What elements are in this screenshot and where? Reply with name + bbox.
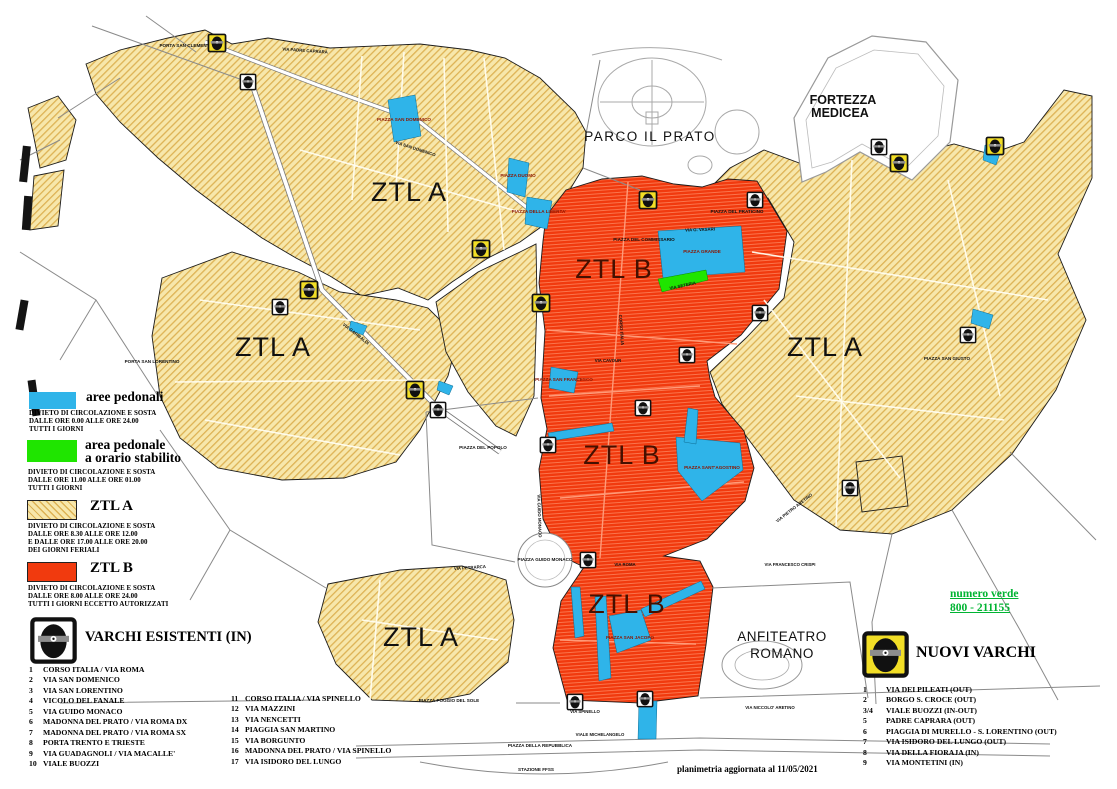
anfiteatro-label-line1: ANFITEATRO bbox=[737, 629, 827, 644]
list-item: 3VIA SAN LORENTINO bbox=[29, 686, 187, 696]
item-name: VIA SAN LORENTINO bbox=[43, 686, 123, 696]
new-varco-icon bbox=[300, 281, 317, 298]
varco-icon bbox=[871, 139, 886, 154]
ztl-a-label-1: ZTL A bbox=[371, 177, 447, 207]
piazza-commissario-label: PIAZZA DEL COMMISSARIO bbox=[613, 237, 675, 242]
ztl-map-page: ZTL A ZTL A ZTL A ZTL A ZTL B ZTL B ZTL … bbox=[0, 0, 1117, 789]
legend-line: DALLE ORE 8.00 ALLE ORE 24.00 bbox=[28, 593, 168, 601]
piazza-liberta-label: PIAZZA DELLA LIBERTA' bbox=[512, 209, 567, 214]
varchi-esistenti-list-col1: 1CORSO ITALIA / VIA ROMA 2VIA SAN DOMENI… bbox=[29, 665, 187, 770]
anfiteatro-label-line2: ROMANO bbox=[750, 646, 814, 661]
item-name: VIA NENCETTI bbox=[245, 715, 301, 725]
street-label-cavour: VIA CAVOUR bbox=[595, 358, 622, 363]
list-item: 3/4VIALE BUOZZI (IN-OUT) bbox=[863, 706, 1057, 716]
item-name: MADONNA DEL PRATO / VIA ROMA SX bbox=[43, 728, 186, 738]
item-name: VIA ISIDORO DEL LUNGO bbox=[245, 757, 341, 767]
item-name: VIA DEI PILEATI (OUT) bbox=[886, 685, 972, 695]
item-name: VIA ISIDORO DEL LUNGO (OUT) bbox=[886, 737, 1006, 747]
legend-line: DIVIETO DI CIRCOLAZIONE E SOSTA bbox=[29, 410, 156, 418]
legend-swatch-ztl-b bbox=[27, 562, 77, 582]
new-varco-icon bbox=[406, 381, 423, 398]
item-name: VIA GUIDO MONACO bbox=[43, 707, 122, 717]
street-label-guido-monaco: VIA GUIDO MONACO bbox=[536, 494, 543, 538]
item-number: 4 bbox=[29, 696, 43, 706]
item-number: 3 bbox=[29, 686, 43, 696]
list-item: 1CORSO ITALIA / VIA ROMA bbox=[29, 665, 187, 675]
ztl-b-label-2: ZTL B bbox=[583, 440, 661, 470]
varco-icon bbox=[637, 691, 652, 706]
item-number: 6 bbox=[863, 727, 886, 737]
legend-line: DEI GIORNI FERIALI bbox=[28, 547, 155, 555]
nuovi-varchi-list: 1VIA DEI PILEATI (OUT) 2BORGO S. CROCE (… bbox=[863, 685, 1057, 769]
legend-line: DIVIETO DI CIRCOLAZIONE E SOSTA bbox=[28, 585, 168, 593]
legend-desc-ztl-b: DIVIETO DI CIRCOLAZIONE E SOSTA DALLE OR… bbox=[28, 585, 168, 609]
legend-desc-ztl-a: DIVIETO DI CIRCOLAZIONE E SOSTA DALLE OR… bbox=[28, 523, 155, 555]
numero-verde-number: 800 - 211155 bbox=[950, 602, 1018, 616]
item-name: PIAGGIA SAN MARTINO bbox=[245, 725, 335, 735]
ztl-a-label-4: ZTL A bbox=[383, 622, 459, 652]
street-label-niccolo-aretino: VIA NICCOLO' ARETINO bbox=[745, 705, 795, 710]
fortezza-label-line1: FORTEZZA bbox=[810, 93, 877, 107]
piazza-praticino-label: PIAZZA DEL PRATICINO bbox=[711, 209, 764, 214]
item-number: 5 bbox=[863, 716, 886, 726]
item-number: 17 bbox=[231, 757, 245, 767]
list-item: 7MADONNA DEL PRATO / VIA ROMA SX bbox=[29, 728, 187, 738]
piazza-san-giusto-label: PIAZZA SAN GIUSTO bbox=[924, 356, 971, 361]
porta-san-clemente-label: PORTA SAN CLEMENTE bbox=[159, 43, 212, 48]
item-number: 11 bbox=[231, 694, 245, 704]
item-name: VIA DELLA FIORAJA (IN) bbox=[886, 748, 979, 758]
varchi-esistenti-list-col2: 11CORSO ITALIA / VIA SPINELLO 12VIA MAZZ… bbox=[231, 694, 391, 767]
list-item: 12VIA MAZZINI bbox=[231, 704, 391, 714]
item-name: PADRE CAPRARA (OUT) bbox=[886, 716, 975, 726]
varco-icon bbox=[752, 305, 767, 320]
legend-desc-aree-pedonali: DIVIETO DI CIRCOLAZIONE E SOSTA DALLE OR… bbox=[29, 410, 156, 434]
new-varco-icon bbox=[890, 154, 907, 171]
legend-title-ztl-b: ZTL B bbox=[90, 561, 133, 576]
item-number: 10 bbox=[29, 759, 43, 769]
ztl-a-zone-rightsmall bbox=[856, 456, 908, 512]
piazza-duomo-label: PIAZZA DUOMO bbox=[500, 173, 536, 178]
legend-line: DALLE ORE 11.00 ALLE ORE 01.00 bbox=[28, 477, 155, 485]
list-item: 5PADRE CAPRARA (OUT) bbox=[863, 716, 1057, 726]
numero-verde-label: numero verde bbox=[950, 588, 1018, 602]
list-item: 5VIA GUIDO MONACO bbox=[29, 707, 187, 717]
item-name: VIALE BUOZZI (IN-OUT) bbox=[886, 706, 977, 716]
varco-icon bbox=[580, 552, 595, 567]
varco-icon bbox=[540, 437, 555, 452]
item-name: VIA BORGUNTO bbox=[245, 736, 305, 746]
ztl-b-label-3: ZTL B bbox=[588, 589, 666, 619]
item-number: 8 bbox=[29, 738, 43, 748]
varchi-esistenti-title: VARCHI ESISTENTI (IN) bbox=[85, 630, 252, 645]
fortezza-label-line2: MEDICEA bbox=[811, 106, 869, 120]
item-number: 14 bbox=[231, 725, 245, 735]
legend-title-aree-pedonali: aree pedonali bbox=[86, 390, 163, 403]
item-number: 15 bbox=[231, 736, 245, 746]
legend-title-orario-stabilito: a orario stabilito bbox=[85, 451, 181, 464]
piazza-poggio-del-sole-label: PIAZZA POGGIO DEL SOLE bbox=[419, 698, 480, 703]
piazza-sant-agostino-label: PIAZZA SANT'AGOSTINO bbox=[684, 465, 740, 470]
list-item: 7VIA ISIDORO DEL LUNGO (OUT) bbox=[863, 737, 1057, 747]
item-number: 9 bbox=[29, 749, 43, 759]
new-varco-icon bbox=[472, 240, 489, 257]
item-name: VIA SAN DOMENICO bbox=[43, 675, 120, 685]
varco-icon bbox=[240, 74, 255, 89]
list-item: 8VIA DELLA FIORAJA (IN) bbox=[863, 748, 1057, 758]
list-item: 13VIA NENCETTI bbox=[231, 715, 391, 725]
item-number: 9 bbox=[863, 758, 886, 768]
stazione-ffss-label: STAZIONE FFSS bbox=[518, 767, 554, 772]
legend-line: E DALLE ORE 17.00 ALLE ORE 20.00 bbox=[28, 539, 155, 547]
legend-line: TUTTI I GIORNI bbox=[29, 426, 156, 434]
item-name: PIAGGIA DI MURELLO - S. LORENTINO (OUT) bbox=[886, 727, 1057, 737]
list-item: 8PORTA TRENTO E TRIESTE bbox=[29, 738, 187, 748]
legend-swatch-aree-pedonali bbox=[29, 392, 76, 409]
item-name: CORSO ITALIA / VIA SPINELLO bbox=[245, 694, 361, 704]
list-item: 2VIA SAN DOMENICO bbox=[29, 675, 187, 685]
new-varco-icon bbox=[532, 294, 549, 311]
item-name: VIA MONTETINI (IN) bbox=[886, 758, 963, 768]
piazza-del-popolo-label: PIAZZA DEL POPOLO bbox=[459, 445, 507, 450]
legend-desc-area-pedonale: DIVIETO DI CIRCOLAZIONE E SOSTA DALLE OR… bbox=[28, 469, 155, 493]
item-number: 7 bbox=[29, 728, 43, 738]
list-item: 6MADONNA DEL PRATO / VIA ROMA DX bbox=[29, 717, 187, 727]
varco-icon bbox=[747, 192, 762, 207]
item-number: 16 bbox=[231, 746, 245, 756]
legend-line: DIVIETO DI CIRCOLAZIONE E SOSTA bbox=[28, 469, 155, 477]
varco-icon bbox=[842, 480, 857, 495]
item-name: VICOLO DEL FANALE bbox=[43, 696, 124, 706]
item-name: MADONNA DEL PRATO / VIA ROMA DX bbox=[43, 717, 187, 727]
varco-icon bbox=[430, 402, 445, 417]
piazza-repubblica-label: PIAZZA DELLA REPUBBLICA bbox=[508, 743, 573, 748]
item-name: VIA GUADAGNOLI / VIA MACALLE' bbox=[43, 749, 175, 759]
legend-line: DALLE ORE 8.30 ALLE ORE 12.00 bbox=[28, 531, 155, 539]
legend-swatch-ztl-a bbox=[27, 500, 77, 520]
list-item: 9VIA MONTETINI (IN) bbox=[863, 758, 1057, 768]
numero-verde: numero verde 800 - 211155 bbox=[950, 588, 1018, 615]
varco-icon bbox=[635, 400, 650, 415]
list-item: 16MADONNA DEL PRATO / VIA SPINELLO bbox=[231, 746, 391, 756]
varco-icon bbox=[272, 299, 287, 314]
legend-line: DALLE ORE 0.00 ALLE ORE 24.00 bbox=[29, 418, 156, 426]
list-item: 6PIAGGIA DI MURELLO - S. LORENTINO (OUT) bbox=[863, 727, 1057, 737]
item-name: CORSO ITALIA / VIA ROMA bbox=[43, 665, 144, 675]
item-name: PORTA TRENTO E TRIESTE bbox=[43, 738, 145, 748]
legend-line: DIVIETO DI CIRCOLAZIONE E SOSTA bbox=[28, 523, 155, 531]
nuovi-varchi-icon bbox=[862, 631, 909, 678]
new-varco-icon bbox=[986, 137, 1003, 154]
item-name: VIALE BUOZZI bbox=[43, 759, 99, 769]
list-item: 14PIAGGIA SAN MARTINO bbox=[231, 725, 391, 735]
piazza-san-francesco-label: PIAZZA SAN FRANCESCO bbox=[535, 377, 593, 382]
legend-title-ztl-a: ZTL A bbox=[90, 499, 133, 514]
item-number: 5 bbox=[29, 707, 43, 717]
item-number: 12 bbox=[231, 704, 245, 714]
legend-line: TUTTI I GIORNI bbox=[28, 485, 155, 493]
item-number: 6 bbox=[29, 717, 43, 727]
item-number: 13 bbox=[231, 715, 245, 725]
ztl-a-label-2: ZTL A bbox=[235, 332, 311, 362]
update-note: planimetria aggiornata al 11/05/2021 bbox=[677, 764, 818, 774]
item-name: MADONNA DEL PRATO / VIA SPINELLO bbox=[245, 746, 391, 756]
varchi-esistenti-icon bbox=[30, 617, 77, 664]
item-number: 2 bbox=[863, 695, 886, 705]
item-name: BORGO S. CROCE (OUT) bbox=[886, 695, 976, 705]
nuovi-varchi-title: NUOVI VARCHI bbox=[916, 645, 1036, 660]
porta-san-lorentino-label: PORTA SAN LORENTINO bbox=[125, 359, 180, 364]
item-number: 7 bbox=[863, 737, 886, 747]
ztl-a-label-3: ZTL A bbox=[787, 332, 863, 362]
street-label-michelangelo: VIALE MICHELANGELO bbox=[576, 732, 625, 737]
street-label-roma: VIA ROMA bbox=[614, 562, 635, 567]
item-number: 2 bbox=[29, 675, 43, 685]
new-varco-icon bbox=[639, 191, 656, 208]
list-item: 2BORGO S. CROCE (OUT) bbox=[863, 695, 1057, 705]
list-item: 9VIA GUADAGNOLI / VIA MACALLE' bbox=[29, 749, 187, 759]
piazza-guido-monaco-label: PIAZZA GUIDO MONACO bbox=[518, 557, 573, 562]
varco-icon bbox=[960, 327, 975, 342]
ztl-a-zone-leftstrip bbox=[28, 96, 76, 168]
varco-icon bbox=[32, 619, 74, 661]
item-number: 3/4 bbox=[863, 706, 886, 716]
varco-icon bbox=[679, 347, 694, 362]
ztl-a-zone-leftstrip2 bbox=[30, 170, 64, 230]
item-number: 1 bbox=[863, 685, 886, 695]
piazza-grande-label: PIAZZA GRANDE bbox=[683, 249, 721, 254]
list-item: 15VIA BORGUNTO bbox=[231, 736, 391, 746]
varco-icon bbox=[567, 694, 582, 709]
item-name: VIA MAZZINI bbox=[245, 704, 295, 714]
list-item: 4VICOLO DEL FANALE bbox=[29, 696, 187, 706]
list-item: 11CORSO ITALIA / VIA SPINELLO bbox=[231, 694, 391, 704]
new-varco-icon bbox=[864, 633, 906, 675]
ztl-b-label-1: ZTL B bbox=[575, 254, 653, 284]
list-item: 1VIA DEI PILEATI (OUT) bbox=[863, 685, 1057, 695]
item-number: 1 bbox=[29, 665, 43, 675]
parco-il-prato-area bbox=[592, 48, 759, 174]
new-varco-icon bbox=[208, 34, 225, 51]
street-label-vasari: VIA G. VASARI bbox=[685, 226, 715, 232]
list-item: 10VIALE BUOZZI bbox=[29, 759, 187, 769]
legend-line: TUTTI I GIORNI ECCETTO AUTORIZZATI bbox=[28, 601, 168, 609]
piazza-san-domenico-label: PIAZZA SAN DOMENICO bbox=[377, 117, 431, 122]
item-number: 8 bbox=[863, 748, 886, 758]
piazza-san-jacopo-label: PIAZZA SAN JACOPO bbox=[606, 635, 654, 640]
street-label-crispi: VIA FRANCESCO CRISPI bbox=[765, 562, 816, 567]
list-item: 17VIA ISIDORO DEL LUNGO bbox=[231, 757, 391, 767]
parco-il-prato-label: PARCO IL PRATO bbox=[584, 129, 716, 144]
legend-swatch-area-pedonale-orario bbox=[27, 440, 77, 462]
